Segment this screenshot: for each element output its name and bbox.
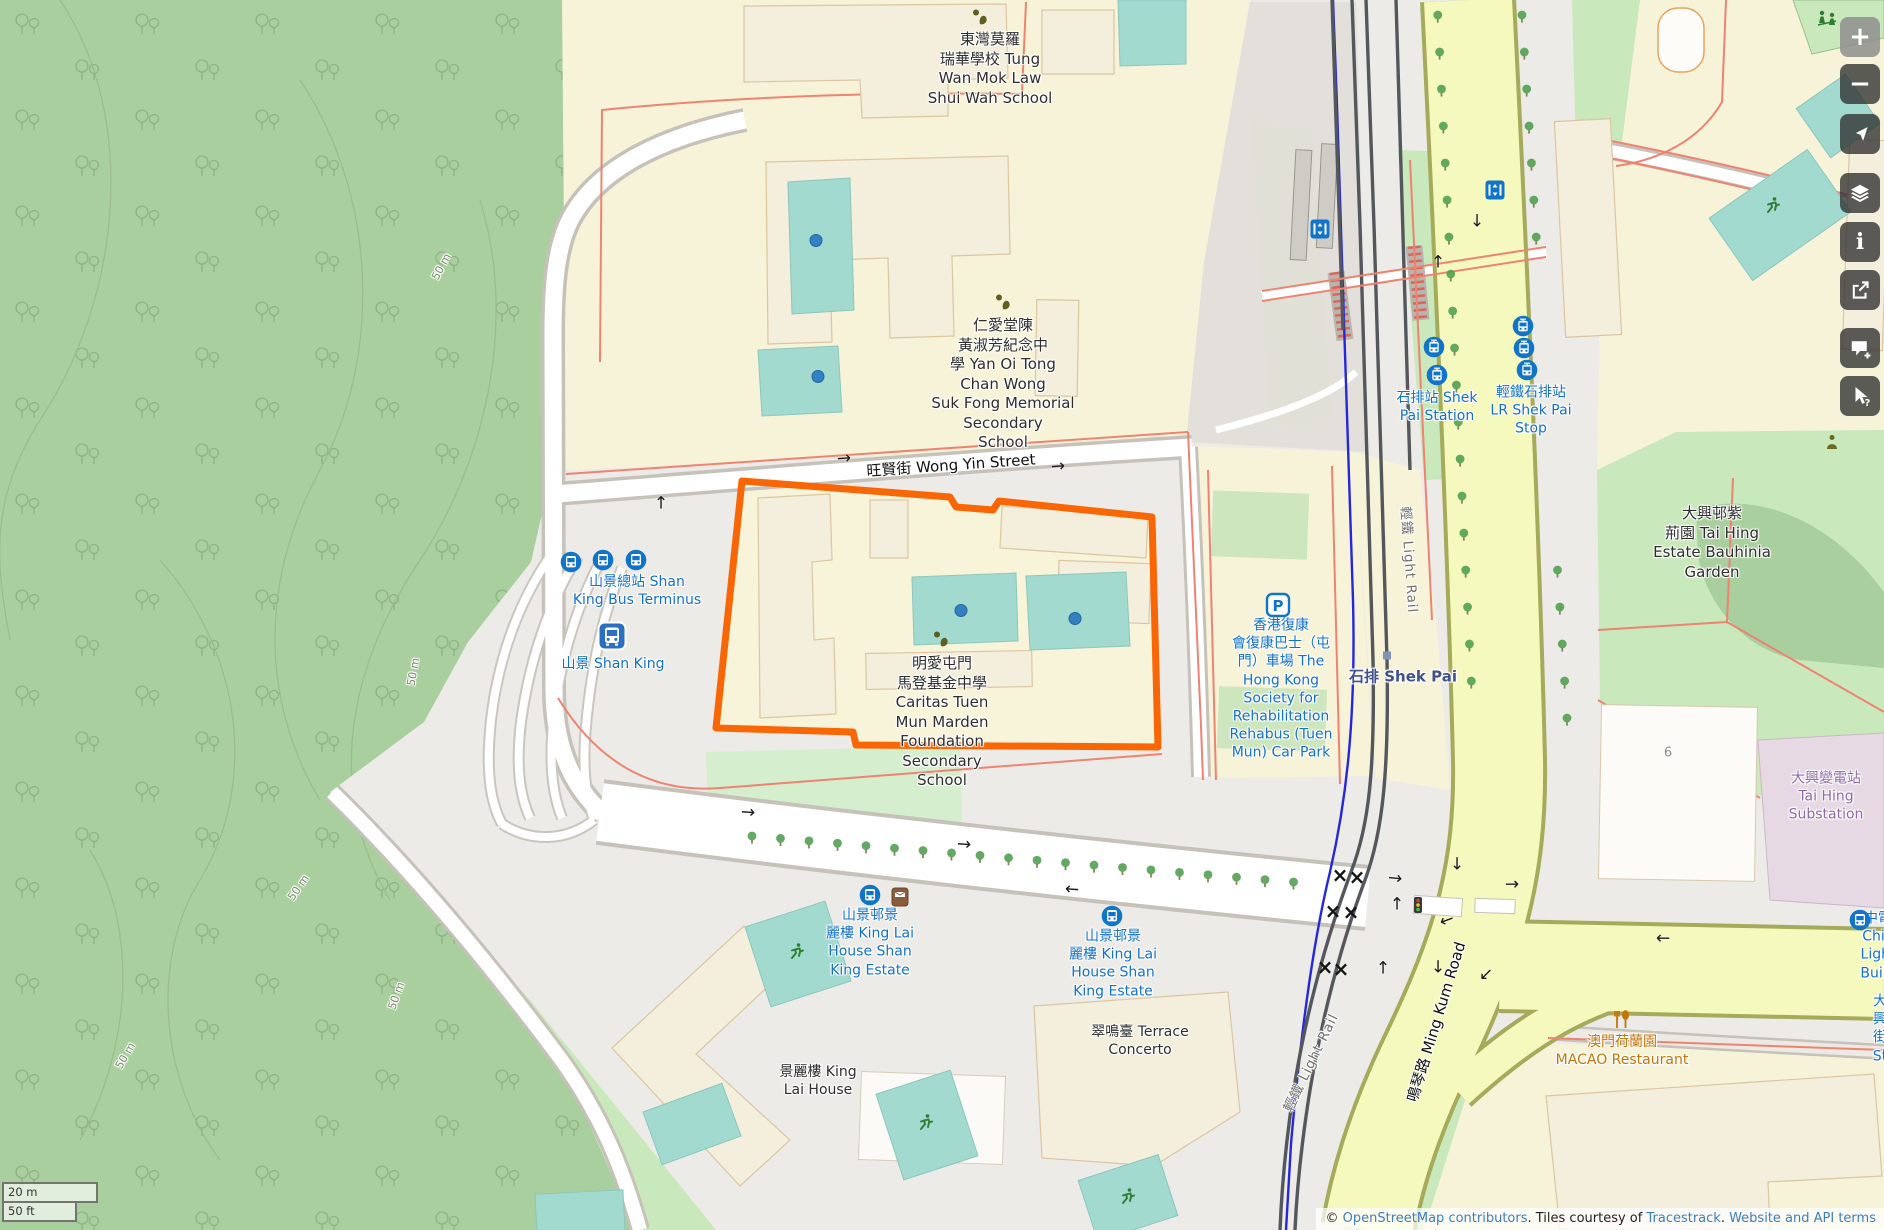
- king-lai-house-label: 景麗樓 King Lai House: [779, 1063, 856, 1099]
- oneway-arrow: →: [740, 804, 755, 822]
- attribution-middle: . Tiles courtesy of: [1528, 1211, 1647, 1226]
- shan-king-bus-terminus-label: 山景總站 Shan King Bus Terminus: [573, 573, 701, 609]
- tram-stop-icon: [1426, 364, 1448, 390]
- query-button[interactable]: ?: [1840, 376, 1880, 416]
- restaurant-icon: [1611, 1009, 1633, 1035]
- info-button[interactable]: i: [1840, 222, 1880, 262]
- runner-icon: [788, 942, 806, 964]
- macao-restaurant-label: 澳門荷蘭園 MACAO Restaurant: [1556, 1033, 1689, 1069]
- caritas-school-label: 明愛屯門 馬登基金中學 Caritas Tuen Mun Marden Foun…: [895, 654, 988, 791]
- oneway-arrow: ↑: [1376, 961, 1390, 978]
- elevator-icon: [1485, 180, 1506, 205]
- rehabus-car-park-label: 香港復康 會復康巴士（屯 門）車場 The Hong Kong Society …: [1230, 616, 1333, 762]
- pitch-dot-icon: [809, 233, 823, 252]
- terms-link[interactable]: Website and API terms: [1729, 1211, 1876, 1226]
- attribution-bar: © OpenStreetMap contributors. Tiles cour…: [1316, 1208, 1884, 1230]
- add-note-button[interactable]: [1840, 328, 1880, 368]
- osm-contributors-link[interactable]: OpenStreetMap contributors: [1343, 1211, 1528, 1226]
- runner-icon: [1119, 1187, 1137, 1209]
- oneway-arrow: →: [956, 836, 971, 854]
- locate-button[interactable]: [1840, 114, 1880, 154]
- school-icon: [993, 292, 1013, 314]
- tracestrack-link[interactable]: Tracestrack: [1646, 1211, 1720, 1226]
- tram-stop-icon: [1423, 336, 1445, 362]
- place-dot-icon: [1382, 646, 1392, 665]
- layers-button[interactable]: [1840, 173, 1880, 213]
- crossing-icon: ×: [1349, 867, 1366, 887]
- bus-stop-icon: [1849, 909, 1871, 935]
- oneway-arrow: →: [1387, 870, 1403, 888]
- oneway-arrow: ←: [1064, 881, 1079, 899]
- tai-hing-estate-garden-label: 大興邨紫 荊園 Tai Hing Estate Bauhinia Garden: [1653, 504, 1771, 582]
- bus-stop-icon: [560, 551, 582, 577]
- tai-hing-substation-label: 大興變電站 Tai Hing Substation: [1789, 770, 1864, 825]
- bus-stop-icon: [1101, 905, 1123, 931]
- oneway-arrow: ↑: [1390, 897, 1404, 914]
- crossing-icon: ×: [1333, 959, 1350, 979]
- oneway-arrow: ↓: [1431, 960, 1445, 977]
- oneway-arrow: ↙: [1479, 967, 1493, 984]
- pitch-dot-icon: [811, 369, 825, 388]
- postbox-icon: [890, 886, 910, 912]
- yan-oi-school-label: 仁愛堂陳 黃淑芳紀念中 學 Yan Oi Tong Chan Wong Suk …: [931, 316, 1074, 453]
- oneway-arrow: ↑: [1431, 255, 1445, 272]
- bus-station-icon: [597, 621, 627, 655]
- crossing-icon: ×: [1325, 901, 1342, 921]
- tai-hing-street-label: 大興街 St: [1873, 993, 1884, 1066]
- shek-pai-station-label: 石排站 Shek Pai Station: [1397, 389, 1478, 425]
- attribution-prefix: ©: [1326, 1211, 1343, 1226]
- runner-icon: [917, 1113, 935, 1135]
- elevator-icon: [1310, 219, 1331, 244]
- oneway-arrow: →: [1050, 458, 1065, 476]
- scale-metric: 20 m: [2, 1182, 98, 1203]
- oneway-arrow: →: [1505, 877, 1519, 894]
- oneway-arrow: ←: [1656, 931, 1670, 948]
- pitch-dot-icon: [954, 603, 968, 622]
- zoom-in-button[interactable]: +: [1840, 17, 1880, 57]
- traffic-light-icon: [1413, 896, 1423, 918]
- shan-king-station-label: 山景 Shan King: [562, 655, 665, 673]
- crossing-icon: ×: [1343, 902, 1360, 922]
- tram-stop-icon: [1516, 359, 1538, 385]
- zoom-out-button[interactable]: −: [1840, 64, 1880, 104]
- lr-shek-pai-stop-label: 輕鐵石排站 LR Shek Pai Stop: [1490, 384, 1571, 439]
- oneway-arrow: ↓: [1470, 214, 1484, 231]
- pitch-dot-icon: [1068, 611, 1082, 630]
- terrace-concerto-label: 翠鳴臺 Terrace Concerto: [1091, 1023, 1188, 1059]
- king-lai-bus-stop-east-label: 山景邨景 麗樓 King Lai House Shan King Estate: [1069, 928, 1157, 1001]
- playground-icon: [1816, 9, 1838, 31]
- school-icon: [931, 629, 951, 651]
- house-number-6-label: 6: [1664, 746, 1672, 763]
- map-viewport[interactable]: { "map": { "selection_color": "#f96605",…: [0, 0, 1884, 1230]
- shek-pai-place-label: 石排 Shek Pai: [1349, 667, 1457, 687]
- crossing-icon: ×: [1317, 957, 1334, 977]
- social-icon: [1824, 434, 1840, 454]
- attribution-period: .: [1721, 1211, 1729, 1226]
- oneway-arrow: →: [836, 450, 851, 468]
- parking-icon: P: [1265, 592, 1291, 622]
- bus-stop-icon: [625, 549, 647, 575]
- oneway-arrow: ↓: [1450, 857, 1464, 874]
- scale-imperial: 50 ft: [2, 1203, 77, 1222]
- king-lai-bus-stop-west-label: 山景邨景 麗樓 King Lai House Shan King Estate: [826, 907, 914, 980]
- bus-stop-icon: [592, 549, 614, 575]
- bus-stop-icon: [859, 884, 881, 910]
- oneway-arrow: ↑: [654, 496, 668, 513]
- school-icon: [970, 7, 990, 29]
- crossing-icon: ×: [1332, 865, 1349, 885]
- share-button[interactable]: [1840, 270, 1880, 310]
- runner-icon: [1764, 196, 1782, 218]
- svg-text:?: ?: [1865, 398, 1871, 408]
- tung-wan-school-label: 東灣莫羅 瑞華學校 Tung Wan Mok Law Shui Wah Scho…: [928, 30, 1053, 108]
- scale-bar: 20 m 50 ft: [2, 1182, 98, 1222]
- svg-text:P: P: [1273, 597, 1284, 615]
